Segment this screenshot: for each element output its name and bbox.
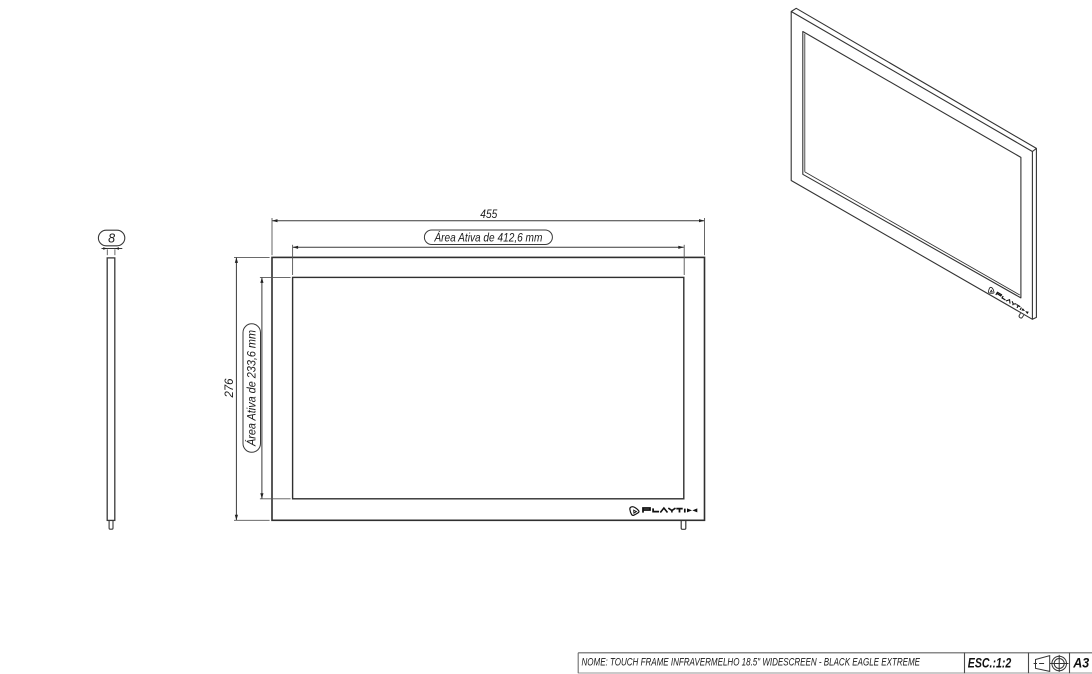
svg-text:276: 276 <box>222 378 236 398</box>
svg-text:NOME: TOUCH FRAME INFRAVERMELH: NOME: TOUCH FRAME INFRAVERMELHO 18.5" WI… <box>582 656 921 668</box>
svg-text:455: 455 <box>480 207 497 221</box>
svg-text:Área Ativa de 412,6 mm: Área Ativa de 412,6 mm <box>434 230 543 245</box>
svg-text:A3: A3 <box>1072 654 1089 670</box>
svg-text:Área Ativa de 233,6 mm: Área Ativa de 233,6 mm <box>244 330 259 447</box>
svg-text:ESC.:1:2: ESC.:1:2 <box>968 654 1012 670</box>
svg-text:8: 8 <box>108 232 115 246</box>
